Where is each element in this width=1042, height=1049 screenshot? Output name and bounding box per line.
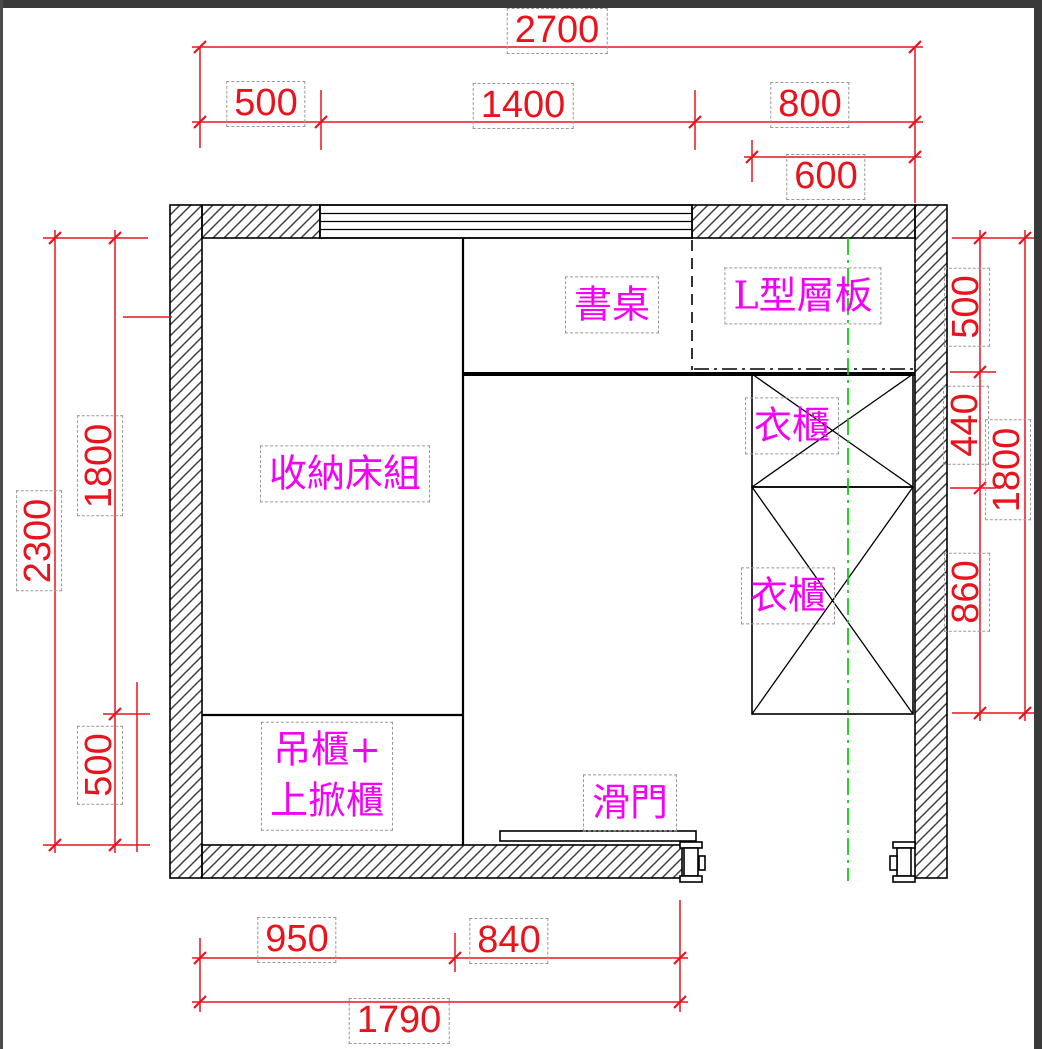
label-desk[interactable]: 書桌 bbox=[565, 276, 659, 333]
wall-top-left bbox=[202, 205, 320, 238]
viewport-edge-right bbox=[1034, 0, 1042, 1049]
label-hanging-cabinet-line2: 上掀櫃 bbox=[270, 776, 384, 827]
label-l-shaped-shelf[interactable]: L型層板 bbox=[724, 267, 881, 324]
dim-bottom-seg1[interactable]: 950 bbox=[257, 917, 336, 963]
label-wardrobe-lower[interactable]: 衣櫃 bbox=[741, 567, 835, 624]
label-sliding-door[interactable]: 滑門 bbox=[583, 774, 677, 831]
dim-left-seg2[interactable]: 500 bbox=[77, 725, 123, 804]
dim-top-total[interactable]: 2700 bbox=[507, 8, 608, 54]
dim-bottom-seg2[interactable]: 840 bbox=[469, 918, 548, 964]
wall-right bbox=[915, 205, 947, 878]
label-hanging-cabinet[interactable]: 吊櫃+ 上掀櫃 bbox=[261, 722, 393, 831]
dim-bottom-total[interactable]: 1790 bbox=[349, 998, 450, 1044]
dim-right-seg3[interactable]: 860 bbox=[944, 552, 990, 631]
floor-plan-canvas: 2700 500 1400 800 600 2300 1800 500 500 … bbox=[0, 0, 1042, 1049]
door-jambs bbox=[680, 842, 915, 882]
dim-left-total[interactable]: 2300 bbox=[16, 491, 62, 592]
label-wardrobe-upper[interactable]: 衣櫃 bbox=[745, 397, 839, 454]
window bbox=[320, 205, 692, 238]
dim-top-seg3[interactable]: 800 bbox=[770, 82, 849, 128]
label-storage-bed[interactable]: 收納床組 bbox=[260, 445, 430, 502]
wall-top-right bbox=[692, 205, 915, 238]
dim-top-seg2[interactable]: 1400 bbox=[473, 83, 574, 129]
wall-bottom bbox=[202, 845, 682, 878]
dim-wardrobe-width[interactable]: 600 bbox=[786, 154, 865, 200]
plan-geometry bbox=[0, 0, 1042, 1049]
label-hanging-cabinet-line1: 吊櫃+ bbox=[270, 725, 384, 776]
door-jamb-left bbox=[680, 842, 705, 882]
sliding-door-panel bbox=[500, 831, 696, 841]
dim-right-seg1[interactable]: 500 bbox=[944, 267, 990, 346]
dim-left-seg1[interactable]: 1800 bbox=[77, 416, 123, 517]
viewport-edge-left bbox=[0, 0, 3, 1049]
dim-top-seg1[interactable]: 500 bbox=[226, 81, 305, 127]
wall-left bbox=[170, 205, 202, 878]
dim-right-seg2[interactable]: 440 bbox=[943, 385, 989, 464]
viewport-edge-top bbox=[0, 0, 1042, 8]
door-jamb-right bbox=[890, 842, 915, 882]
dim-right-total[interactable]: 1800 bbox=[985, 420, 1031, 521]
